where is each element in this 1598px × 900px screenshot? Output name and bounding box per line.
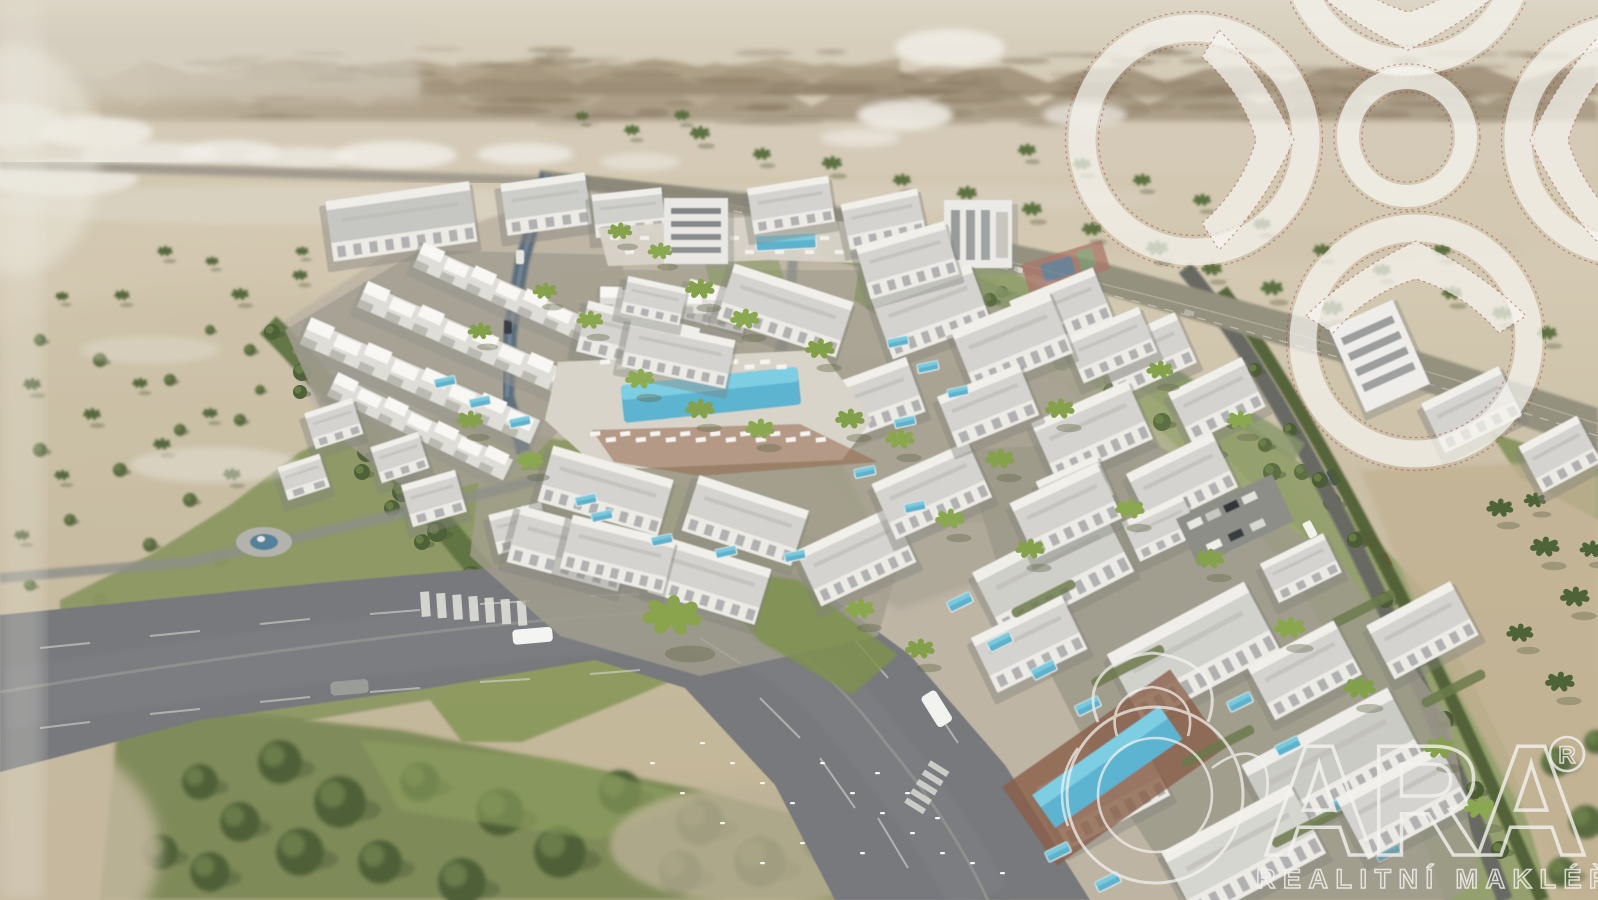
svg-text:REALITNÍ MAKLÉŘI: REALITNÍ MAKLÉŘI: [1256, 863, 1598, 894]
svg-text:R: R: [1558, 742, 1575, 769]
svg-text:ARA: ARA: [1262, 713, 1584, 889]
